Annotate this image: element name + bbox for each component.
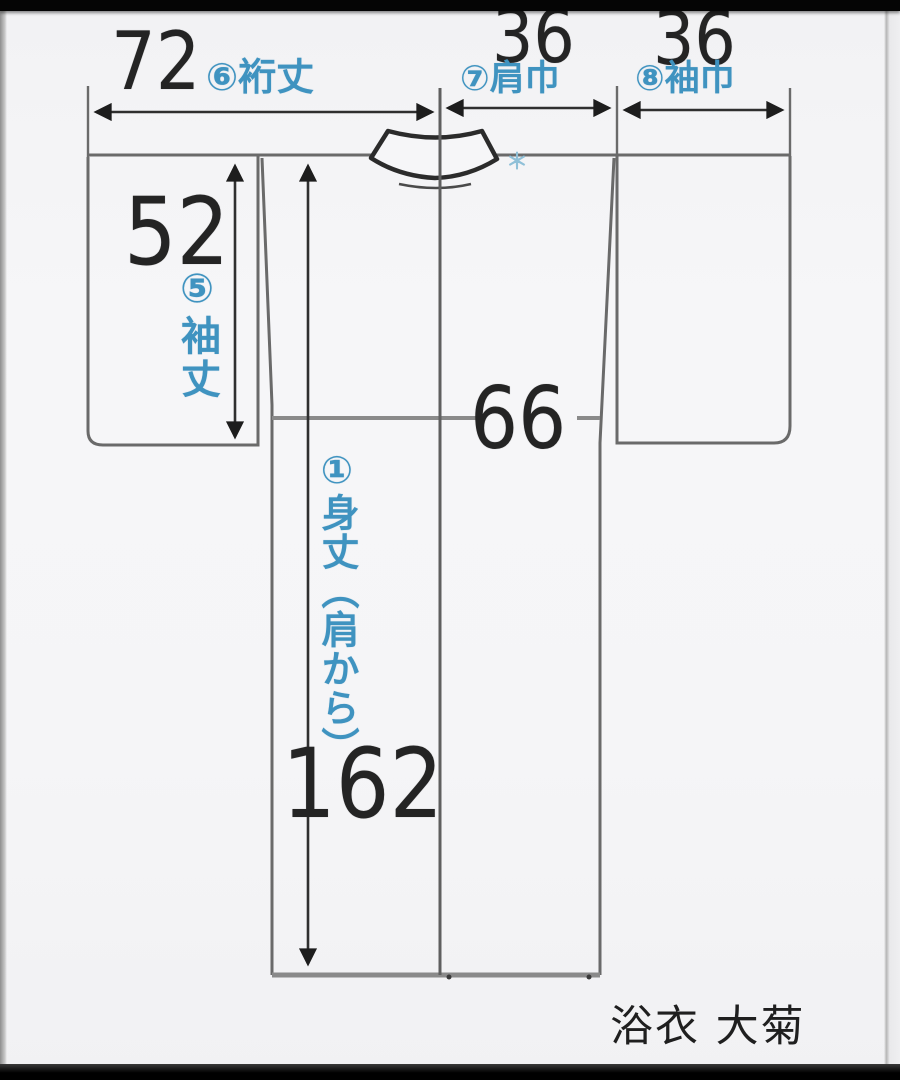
right-sleeve-outline xyxy=(617,156,790,443)
photo-frame: 72 36 36 52 66 162 ⑥裄丈 ⑦肩巾 ⑧袖巾 ⑤袖丈 ①身丈（肩… xyxy=(0,0,900,1080)
photo-edge-right xyxy=(884,0,900,1080)
body-right-seam xyxy=(600,158,614,975)
photo-edge-left xyxy=(0,0,7,1080)
hem-mark xyxy=(587,975,592,980)
measurement-value-mitake: 162 xyxy=(282,736,443,832)
kimono-outline-drawing xyxy=(0,0,900,1080)
measurement-label-mitake: ①身丈（肩から） xyxy=(318,448,356,766)
measurement-value-yukitake: 72 xyxy=(111,22,201,102)
collar-outline xyxy=(371,131,497,188)
measurement-label-katahaba: ⑦肩巾 xyxy=(460,62,560,97)
measurement-value-mihaba: 66 xyxy=(470,376,566,462)
letterbox-bottom xyxy=(0,1064,900,1080)
product-caption: 浴衣 大菊 xyxy=(610,1006,806,1049)
collar-shadow-line xyxy=(399,184,471,188)
collar-note-mark: ＊ xyxy=(506,152,528,174)
measurement-label-yukitake: ⑥裄丈 xyxy=(206,58,314,96)
hem-mark xyxy=(447,975,452,980)
body-left-seam xyxy=(262,158,272,975)
measurement-label-sodetake: ⑤袖丈 xyxy=(177,266,217,401)
measurement-label-sodehaba: ⑧袖巾 xyxy=(635,62,735,97)
letterbox-top xyxy=(0,0,900,11)
